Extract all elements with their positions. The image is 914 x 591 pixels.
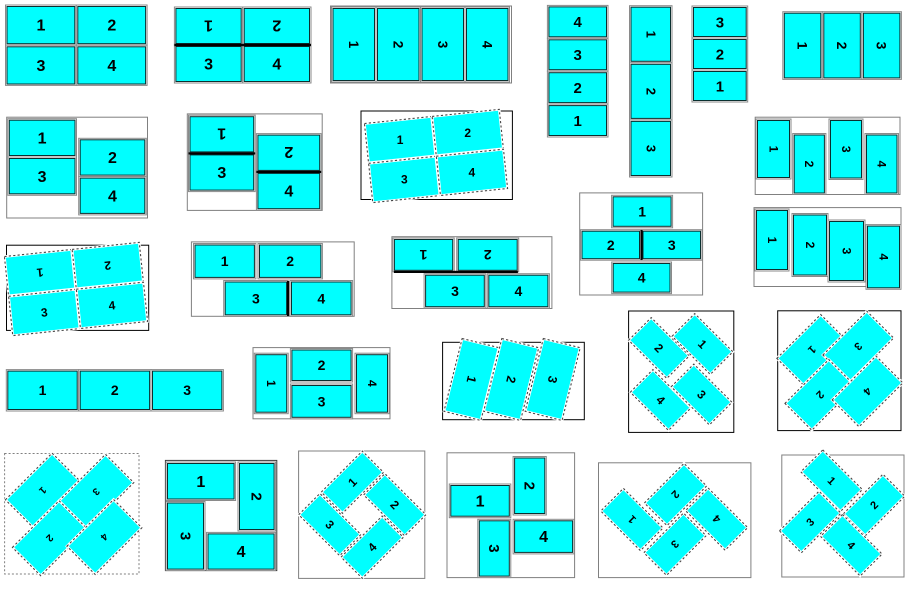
svg-text:2: 2 (802, 161, 816, 168)
svg-text:3: 3 (874, 42, 890, 50)
svg-text:2: 2 (643, 88, 658, 95)
svg-text:4: 4 (539, 529, 548, 546)
svg-text:3: 3 (451, 283, 459, 299)
svg-text:4: 4 (365, 380, 379, 387)
svg-text:3: 3 (643, 145, 658, 152)
svg-text:1: 1 (38, 130, 47, 147)
svg-text:2: 2 (803, 242, 817, 249)
svg-text:1: 1 (638, 204, 646, 220)
svg-text:2: 2 (574, 80, 582, 97)
svg-text:3: 3 (839, 248, 853, 255)
svg-text:3: 3 (217, 165, 226, 182)
svg-text:2: 2 (390, 41, 405, 49)
svg-text:3: 3 (401, 173, 408, 187)
svg-text:2: 2 (248, 492, 265, 500)
svg-text:2: 2 (520, 482, 537, 490)
svg-text:4: 4 (876, 254, 890, 261)
svg-text:1: 1 (765, 237, 779, 244)
svg-text:1: 1 (476, 494, 485, 511)
svg-text:2: 2 (111, 382, 119, 398)
svg-text:2: 2 (464, 126, 471, 140)
svg-text:2: 2 (716, 46, 724, 63)
svg-text:4: 4 (469, 166, 476, 180)
svg-text:3: 3 (252, 290, 260, 306)
svg-text:2: 2 (484, 247, 492, 263)
svg-text:4: 4 (479, 41, 494, 49)
svg-text:3: 3 (668, 237, 676, 253)
svg-text:4: 4 (515, 283, 523, 299)
svg-text:3: 3 (435, 41, 450, 49)
svg-text:2: 2 (272, 16, 281, 33)
svg-text:4: 4 (638, 270, 646, 286)
svg-text:1: 1 (397, 133, 404, 147)
svg-text:4: 4 (272, 57, 281, 74)
svg-text:1: 1 (264, 380, 278, 387)
svg-text:3: 3 (485, 544, 502, 552)
svg-text:1: 1 (36, 18, 45, 35)
svg-text:3: 3 (38, 169, 47, 186)
svg-text:1: 1 (766, 146, 780, 153)
svg-text:2: 2 (107, 18, 116, 35)
svg-text:2: 2 (108, 150, 117, 167)
svg-text:1: 1 (39, 382, 47, 398)
svg-text:4: 4 (237, 544, 246, 561)
svg-text:2: 2 (607, 237, 615, 253)
svg-text:1: 1 (574, 113, 582, 130)
svg-text:1: 1 (346, 41, 361, 49)
svg-text:2: 2 (834, 42, 850, 50)
svg-text:3: 3 (36, 58, 45, 75)
svg-text:3: 3 (716, 14, 724, 31)
svg-text:1: 1 (217, 125, 226, 142)
svg-text:3: 3 (318, 393, 326, 409)
svg-text:4: 4 (284, 184, 293, 201)
svg-text:4: 4 (108, 188, 117, 205)
svg-text:1: 1 (204, 16, 213, 33)
svg-text:4: 4 (317, 290, 325, 306)
svg-text:4: 4 (107, 58, 116, 75)
svg-text:1: 1 (716, 78, 724, 95)
svg-text:3: 3 (839, 146, 853, 153)
svg-text:3: 3 (176, 532, 193, 540)
svg-text:1: 1 (419, 247, 427, 263)
svg-text:2: 2 (284, 143, 293, 160)
svg-text:3: 3 (204, 57, 213, 74)
svg-text:3: 3 (183, 382, 191, 398)
svg-text:1: 1 (643, 31, 658, 38)
svg-text:1: 1 (221, 253, 229, 269)
svg-text:3: 3 (574, 47, 582, 64)
svg-text:1: 1 (196, 474, 205, 491)
svg-text:2: 2 (286, 253, 294, 269)
svg-text:4: 4 (875, 161, 889, 168)
svg-text:2: 2 (318, 357, 326, 373)
svg-text:4: 4 (574, 14, 583, 31)
svg-text:1: 1 (795, 42, 811, 50)
